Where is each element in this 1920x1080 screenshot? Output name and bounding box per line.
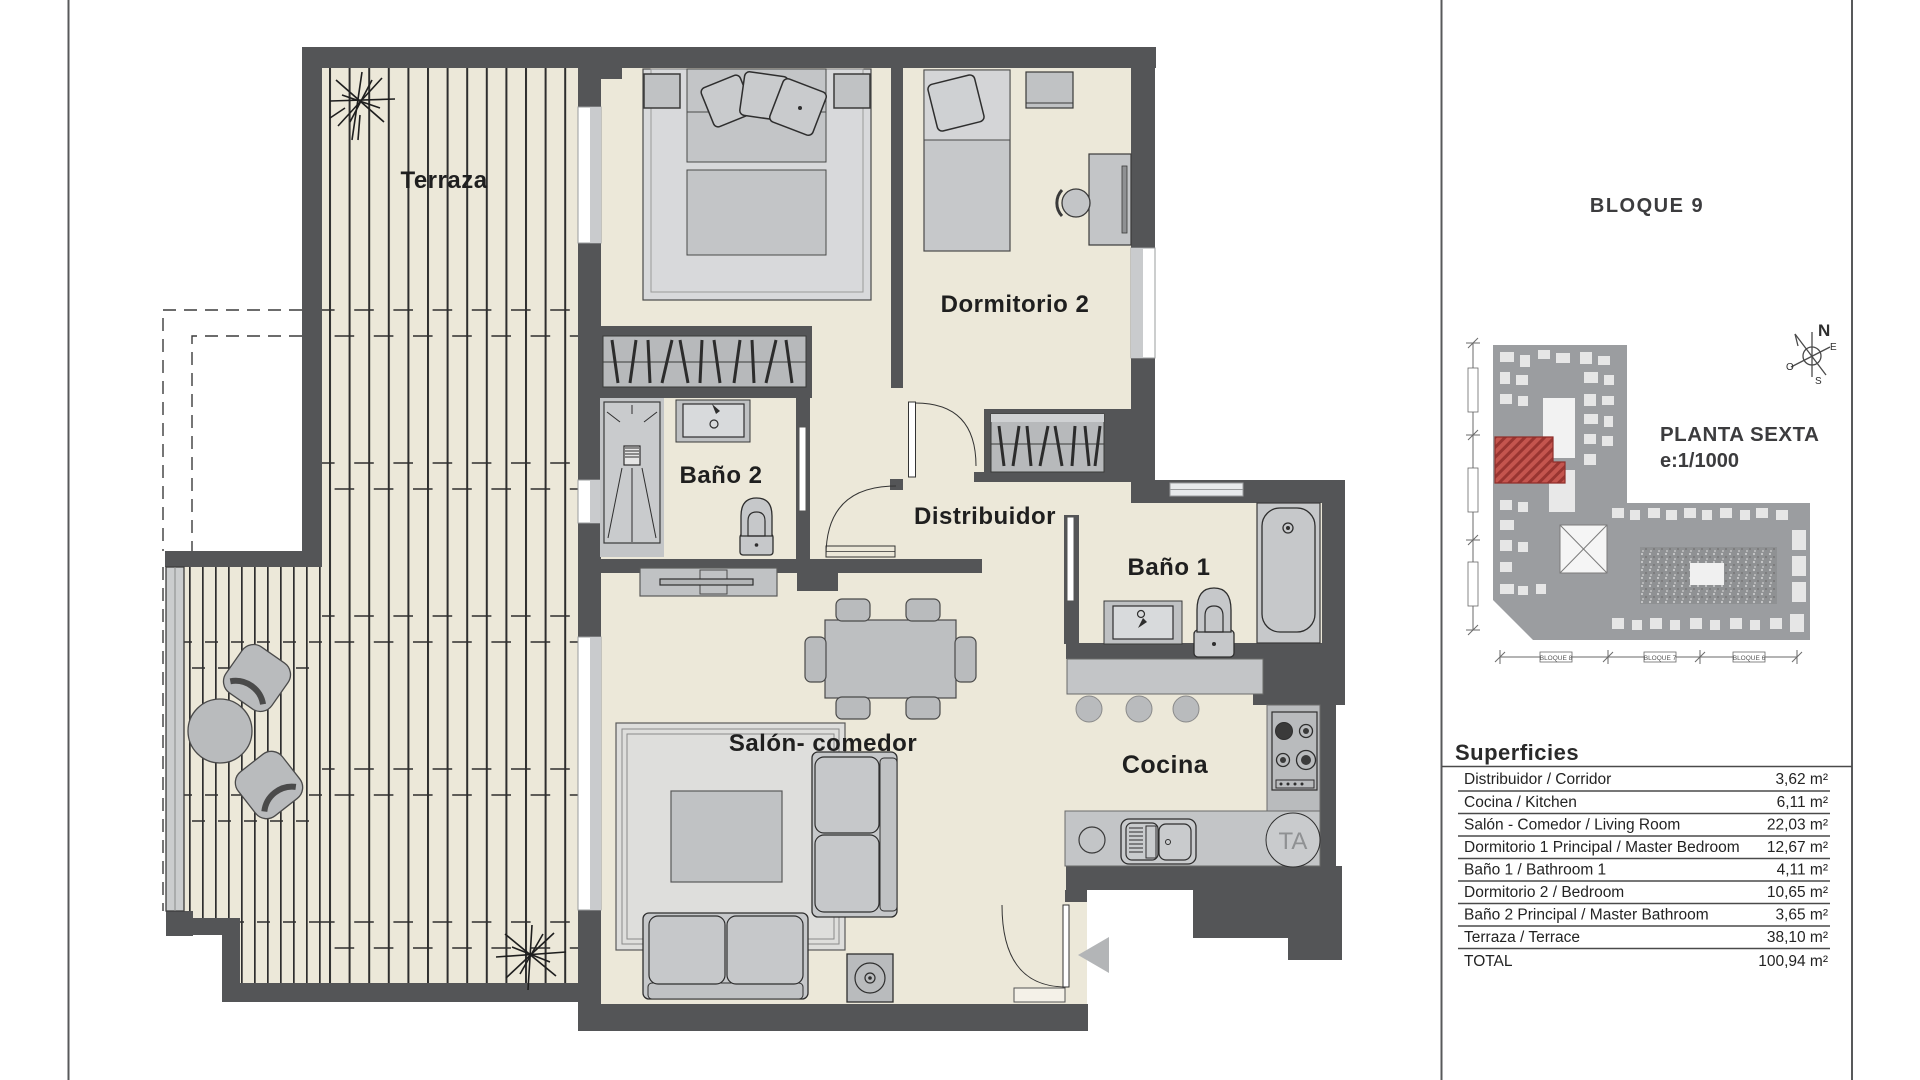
svg-text:PLANTA SEXTA: PLANTA SEXTA (1660, 423, 1819, 446)
svg-text:TOTAL: TOTAL (1464, 953, 1513, 970)
svg-text:e:1/1000: e:1/1000 (1660, 450, 1739, 472)
svg-text:O: O (1786, 362, 1794, 373)
svg-text:N: N (1818, 321, 1830, 340)
svg-text:S: S (1815, 376, 1822, 387)
svg-text:4,11 m²: 4,11 m² (1777, 862, 1828, 879)
svg-text:12,67 m²: 12,67 m² (1767, 839, 1828, 856)
svg-text:BLOQUE 8: BLOQUE 8 (1540, 655, 1573, 662)
svg-text:BLOQUE 9: BLOQUE 9 (1590, 195, 1704, 217)
svg-text:Dormitorio 1 Principal / Maste: Dormitorio 1 Principal / Master Bedroom (1464, 839, 1740, 856)
svg-text:Baño 2 Principal / Master Bath: Baño 2 Principal / Master Bathroom (1464, 907, 1709, 924)
svg-text:Salón - Comedor / Living Room: Salón - Comedor / Living Room (1464, 817, 1680, 834)
svg-text:Superficies: Superficies (1455, 740, 1579, 765)
svg-text:100,94 m²: 100,94 m² (1758, 953, 1828, 970)
svg-text:BLOQUE 7: BLOQUE 7 (1644, 655, 1677, 662)
svg-text:22,03 m²: 22,03 m² (1767, 817, 1828, 834)
svg-text:38,10 m²: 38,10 m² (1767, 929, 1828, 946)
svg-text:Baño 2: Baño 2 (679, 462, 762, 489)
svg-text:E: E (1830, 342, 1837, 353)
svg-text:Dormitorio 2: Dormitorio 2 (941, 291, 1090, 318)
svg-text:Salón- comedor: Salón- comedor (729, 730, 917, 757)
svg-text:3,65 m²: 3,65 m² (1775, 907, 1828, 924)
svg-text:Baño 1: Baño 1 (1127, 554, 1210, 581)
svg-text:Cocina / Kitchen: Cocina / Kitchen (1464, 794, 1577, 811)
svg-text:3,62 m²: 3,62 m² (1775, 771, 1828, 788)
svg-text:6,11 m²: 6,11 m² (1777, 794, 1828, 811)
svg-text:Dormitorio 2 / Bedroom: Dormitorio 2 / Bedroom (1464, 884, 1624, 901)
svg-text:Distribuidor: Distribuidor (914, 503, 1056, 530)
svg-text:Distribuidor / Corridor: Distribuidor / Corridor (1464, 771, 1611, 788)
svg-text:TA: TA (1279, 828, 1308, 855)
svg-text:Cocina: Cocina (1122, 751, 1209, 779)
svg-text:10,65 m²: 10,65 m² (1767, 884, 1828, 901)
svg-text:BLOQUE 6: BLOQUE 6 (1733, 655, 1766, 662)
svg-text:Terraza: Terraza (400, 167, 487, 194)
svg-text:Baño 1 / Bathroom 1: Baño 1 / Bathroom 1 (1464, 862, 1606, 879)
svg-text:Terraza / Terrace: Terraza / Terrace (1464, 929, 1580, 946)
